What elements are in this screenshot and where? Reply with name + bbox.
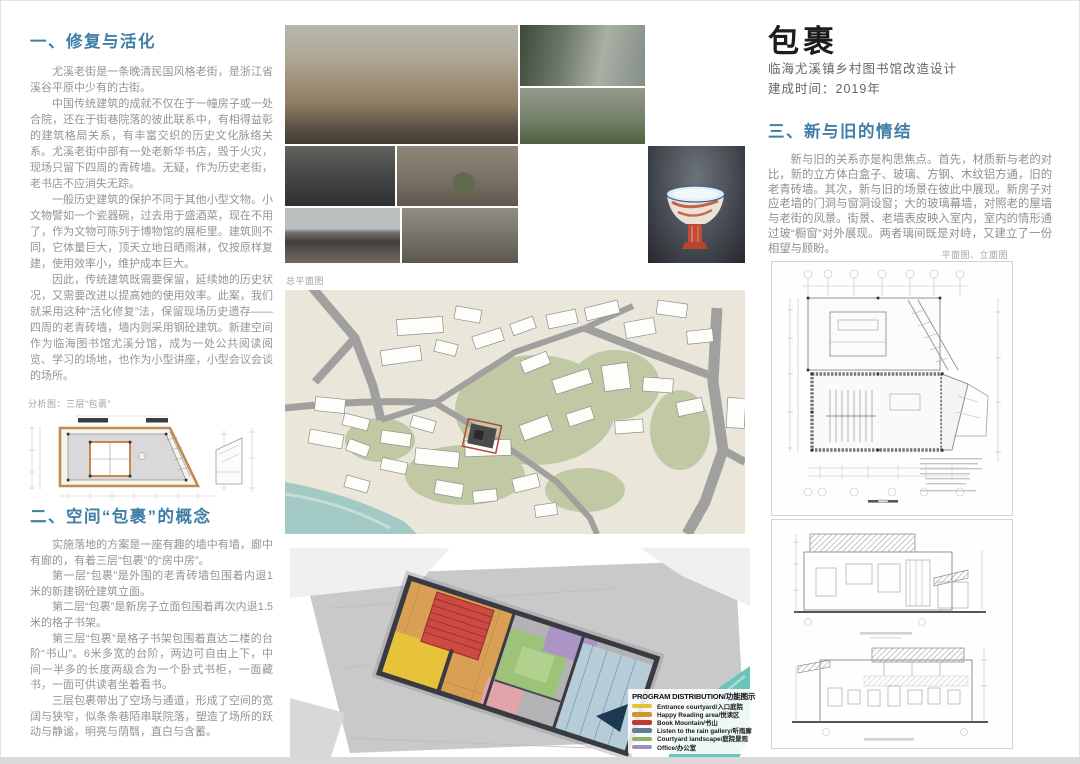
legend-title: PROGRAM DISTRIBUTION/功能图示 (632, 691, 756, 702)
photo-alley-fence (520, 25, 645, 86)
photo-collapsed-roof (285, 208, 400, 263)
legend-item-office: Office/办公室 (632, 743, 756, 751)
section1-body: 尤溪老街是一条晚清民国风格老街，是浙江省溪谷平原中少有的古街。 中国传统建筑的成… (30, 64, 273, 384)
completion-date: 建成时间：2019年 (768, 78, 881, 97)
elevation-a (793, 534, 986, 638)
analysis-adjacent-house (216, 438, 242, 484)
photo-old-doorway (285, 146, 395, 206)
photo-courtyard (397, 146, 518, 206)
elevation-b-caption (864, 738, 914, 741)
section2-paragraph-5: 三层包裹带出了空场与通道，形成了空间的宽阔与狭窄，似条条巷陌串联院落，塑造了场所… (30, 694, 273, 741)
section3-body: 新与旧的关系亦是构思焦点。首先，材质新与老的对比，新的立方体白盒子、玻璃、方钢、… (768, 153, 1052, 257)
program-legend: PROGRAM DISTRIBUTION/功能图示 Entrance court… (628, 689, 760, 754)
section-new-and-old: 三、新与旧的情结 新与旧的关系亦是构思焦点。首先，材质新与老的对比，新的立方体白… (768, 118, 1052, 257)
legend-swatch-rain-gallery (632, 728, 652, 733)
bowl-stem (688, 224, 702, 244)
page-bottom-edge (0, 757, 1080, 764)
plan-grid-bubbles-bottom (804, 488, 964, 496)
section3-heading: 三、新与旧的情结 (768, 118, 1052, 142)
elevation-b (792, 648, 988, 741)
section3-paragraph-1: 新与旧的关系亦是构思焦点。首先，材质新与老的对比，新的立方体白盒子、玻璃、方钢、… (768, 153, 1052, 257)
plan-lower-block (812, 374, 988, 450)
plan-upper-block (808, 298, 958, 370)
porcelain-bowl-illustration (648, 146, 745, 263)
section1-heading: 一、修复与活化 (30, 28, 273, 52)
legend-swatch-reading (632, 712, 652, 717)
plan-scale-bar (868, 500, 898, 503)
section1-paragraph-4: 因此，传统建筑既需要保留，延续她的历史状况，又需要改进以提高她的使用效率。此案，… (30, 272, 273, 384)
site-plan-drawing (285, 290, 745, 534)
floor-plan-frame (771, 261, 1013, 516)
axon-street-patch (290, 698, 345, 760)
legend-swatch-office (632, 745, 652, 750)
photo-ruined-brick-wall (520, 88, 645, 144)
legend-label-office: Office/办公室 (657, 743, 696, 752)
floor-plan-drawing (772, 262, 1010, 513)
analysis-top-schedule-bars (78, 418, 168, 423)
section1-paragraph-3: 一般历史建筑的保护不同于其他小型文物。小文物譬如一个瓷器碗，过去用于盛酒菜，现在… (30, 192, 273, 272)
bowl-foot (682, 242, 708, 249)
elevations-frame (771, 519, 1013, 749)
elevation-drawings (772, 520, 1010, 746)
legend-swatch-book-mountain (632, 720, 652, 725)
section2-paragraph-4: 第三层“包裹”是格子书架包围着直达二楼的台阶“书山”。6米多宽的台阶，两边可自由… (30, 632, 273, 694)
section-wrap-concept: 二、空间“包裹”的概念 实施落地的方案是一座有趣的墙中有墙，廊中有廊的，有着三层… (30, 503, 273, 741)
photo-street-lane (402, 208, 518, 263)
analysis-plan-diagram (20, 410, 264, 504)
section1-paragraph-2: 中国传统建筑的成就不仅在于一幢房子或一处合院，还在于街巷院落的彼此联系中，有相得… (30, 96, 273, 192)
poster-subtitle: 临海尤溪镇乡村图书馆改造设计 (768, 58, 957, 77)
plan-grid-bubbles-top (802, 270, 968, 296)
plan-notes-block (920, 458, 982, 491)
photo-porcelain-bowl (648, 146, 745, 263)
section2-paragraph-1: 实施落地的方案是一座有趣的墙中有墙，廊中有廊的，有着三层“包裹”的“房中房”。 (30, 538, 273, 569)
drawings-label: 平面图、立面图 (768, 248, 1008, 261)
section2-body: 实施落地的方案是一座有趣的墙中有墙，廊中有廊的，有着三层“包裹”的“房中房”。 … (30, 538, 273, 741)
section2-paragraph-3: 第二层“包裹”是新房子立面包围着再次内退1.5米的格子书架。 (30, 600, 273, 631)
photo-old-street-bridge (285, 25, 518, 144)
elevation-a-caption (860, 632, 912, 635)
section2-paragraph-2: 第一层“包裹”是外围的老青砖墙包围着内退1米的新建钢砼建筑立面。 (30, 569, 273, 600)
analysis-diagram-caption: 分析图：三层“包裹” (28, 397, 111, 410)
poster-title: 包裹 (768, 16, 838, 61)
legend-swatch-landscape (632, 737, 652, 742)
section1-paragraph-1: 尤溪老街是一条晚清民国风格老街，是浙江省溪谷平原中少有的古街。 (30, 64, 273, 96)
site-plan-label: 总平面图 (286, 274, 324, 287)
section2-heading: 二、空间“包裹”的概念 (30, 503, 273, 527)
section-restoration: 一、修复与活化 尤溪老街是一条晚清民国风格老街，是浙江省溪谷平原中少有的古街。 … (30, 28, 273, 384)
legend-swatch-entrance (632, 704, 652, 709)
poster-page: 一、修复与活化 尤溪老街是一条晚清民国风格老街，是浙江省溪谷平原中少有的古街。 … (0, 0, 1080, 764)
